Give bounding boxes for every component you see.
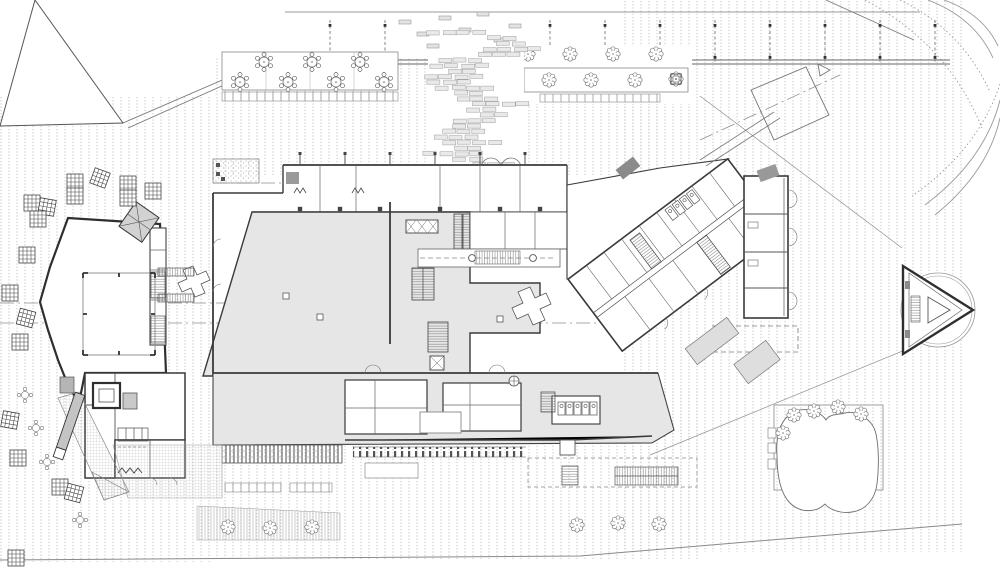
- stamped-symbol: [120, 190, 136, 206]
- stamped-symbol: [263, 521, 277, 535]
- stamped-symbol: [317, 314, 323, 320]
- skylight: [93, 383, 120, 408]
- cascade-paver: [485, 97, 498, 101]
- cascade-paver: [443, 129, 456, 133]
- cascade-paver: [453, 119, 466, 123]
- cascade-paver: [482, 119, 495, 123]
- cascade-paver: [457, 140, 470, 144]
- triangle-kiosk: [901, 266, 975, 354]
- cascade-paver: [467, 86, 480, 90]
- stamped-symbol: [438, 207, 442, 211]
- cascade-paver: [449, 136, 462, 140]
- cascade-paver: [453, 124, 466, 128]
- stamped-symbol: [606, 47, 620, 61]
- stamped-symbol: [611, 516, 625, 530]
- cascade-paver: [476, 63, 489, 67]
- cascade-paver: [502, 102, 515, 106]
- stamped-symbol: [439, 16, 451, 20]
- stamped-symbol: [24, 195, 40, 211]
- cascade-paver: [440, 152, 453, 156]
- cascade-paver: [426, 31, 439, 35]
- stamped-symbol: [283, 293, 289, 299]
- cascade-paver: [449, 69, 462, 73]
- stamped-symbol: [807, 404, 821, 418]
- stamped-symbol: [574, 402, 581, 415]
- cascade-paver: [494, 113, 507, 117]
- cascade-paver: [468, 146, 481, 150]
- stamped-symbol: [10, 450, 26, 466]
- outdoor-seating-band: [222, 52, 398, 101]
- cascade-paver: [480, 113, 493, 117]
- stamped-symbol: [497, 316, 503, 322]
- cascade-paver: [468, 119, 481, 123]
- stamped-symbol: [563, 47, 577, 61]
- revolving-door: [509, 376, 519, 386]
- cascade-paver: [473, 102, 486, 106]
- cascade-paver: [434, 135, 447, 139]
- stamped-symbol: [399, 20, 411, 24]
- bench-row: [540, 94, 660, 102]
- stamped-symbol: [1, 411, 20, 430]
- cascade-paver: [489, 140, 502, 144]
- cascade-paver: [483, 107, 496, 111]
- stamped-symbol: [30, 211, 46, 227]
- stamped-symbol: [854, 407, 868, 421]
- cascade-paver: [427, 80, 440, 84]
- stamped-symbol: [509, 24, 521, 28]
- cascade-paver: [439, 75, 452, 79]
- cascade-paver: [469, 97, 482, 101]
- stamped-symbol: [652, 517, 666, 531]
- cascade-paver: [457, 129, 470, 133]
- cascade-paver: [452, 85, 465, 89]
- light-court: [420, 412, 461, 433]
- cascade-paver: [453, 58, 466, 62]
- cascade-paver: [467, 124, 480, 128]
- stamped-symbol: [558, 402, 565, 415]
- stamped-symbol: [145, 183, 161, 199]
- cascade-paver: [483, 48, 496, 52]
- cascade-paver: [457, 97, 470, 101]
- stamped-symbol: [8, 550, 24, 566]
- cascade-paver: [503, 36, 516, 40]
- kiosk: [560, 440, 575, 455]
- bench-row: [290, 483, 332, 492]
- kiosk-stair: [911, 296, 920, 322]
- cascade-paver: [455, 91, 468, 95]
- cascade-paver: [443, 31, 456, 35]
- cascade-paver: [498, 47, 511, 51]
- cascade-paver: [455, 152, 468, 156]
- trellis: [222, 445, 342, 463]
- reflecting-pool: [365, 463, 418, 478]
- cascade-paver: [486, 102, 499, 106]
- stamped-symbol: [776, 426, 790, 440]
- cascade-paver: [456, 30, 469, 34]
- stamped-symbol: [67, 188, 83, 204]
- cascade-paver: [425, 75, 438, 79]
- cascade-paver: [455, 75, 468, 79]
- pond: [777, 410, 879, 513]
- colonnade: [353, 447, 526, 457]
- floor-plan-drawing: [0, 0, 1000, 572]
- elevator-bank: [406, 220, 438, 233]
- stair: [562, 466, 578, 485]
- cascade-paver: [481, 86, 494, 90]
- cascade-paver: [462, 69, 475, 73]
- ramp-pad: [60, 377, 74, 393]
- stamped-symbol: [649, 47, 663, 61]
- stamped-symbol: [469, 255, 476, 262]
- cascade-paver: [462, 64, 475, 68]
- stamped-symbol: [2, 285, 18, 301]
- stamped-symbol: [338, 207, 342, 211]
- cascade-paver: [493, 52, 506, 56]
- cascade-paver: [467, 108, 480, 112]
- cascade-paver: [470, 157, 483, 161]
- cascade-paver: [465, 135, 478, 139]
- cascade-paver: [507, 52, 520, 56]
- stamped-symbol: [542, 73, 556, 87]
- door-mat: [286, 172, 299, 184]
- south-rooms-west: [345, 380, 427, 434]
- planting-bed: [213, 159, 259, 183]
- stamped-symbol: [582, 402, 589, 415]
- floor-plan-page: [0, 0, 1000, 572]
- bench-row: [225, 483, 281, 492]
- stamped-symbol: [378, 207, 382, 211]
- stamped-symbol: [570, 518, 584, 532]
- cascade-paver: [473, 141, 486, 145]
- cascade-paver: [430, 64, 443, 68]
- cascade-paver: [515, 48, 528, 52]
- wc-row: [558, 402, 597, 415]
- stamped-symbol: [530, 255, 537, 262]
- cascade-paver: [455, 146, 468, 150]
- stamped-symbol: [831, 400, 845, 414]
- cascade-paver: [453, 157, 466, 161]
- stamped-symbol: [477, 12, 489, 16]
- elevator: [430, 356, 444, 370]
- stamped-symbol: [787, 408, 801, 422]
- link-bridge: [158, 268, 194, 276]
- cascade-paver: [457, 80, 470, 84]
- stamped-symbol: [628, 73, 642, 87]
- stamped-symbol: [427, 44, 439, 48]
- cascade-paver: [488, 36, 501, 40]
- stamped-symbol: [566, 402, 573, 415]
- cascade-paver: [439, 59, 452, 63]
- stair: [151, 316, 165, 343]
- cascade-paver: [516, 102, 529, 106]
- cascade-paver: [469, 59, 482, 63]
- bridge-treads: [475, 251, 520, 264]
- cascade-paver: [473, 30, 486, 34]
- cascade-paver: [496, 41, 509, 45]
- cascade-paver: [444, 80, 457, 84]
- bench-row: [222, 92, 398, 101]
- stair: [428, 322, 448, 352]
- cascade-paver: [472, 129, 485, 133]
- stair: [541, 392, 555, 412]
- cascade-paver: [445, 64, 458, 68]
- cascade-paver: [512, 42, 525, 46]
- stamped-symbol: [538, 207, 542, 211]
- stamped-symbol: [498, 207, 502, 211]
- stamped-symbol: [590, 402, 597, 415]
- cascade-paver: [443, 141, 456, 145]
- link-bridge: [158, 294, 194, 302]
- stamped-symbol: [305, 520, 319, 534]
- stamped-symbol: [12, 334, 28, 350]
- door-swing: [213, 239, 221, 292]
- stamped-symbol: [19, 247, 35, 263]
- stamped-symbol: [221, 520, 235, 534]
- cascade-paver: [527, 47, 540, 51]
- east-rooms: [470, 212, 567, 249]
- cascade-paver: [470, 74, 483, 78]
- stamped-symbol: [298, 207, 302, 211]
- cascade-paver: [435, 86, 448, 90]
- stamped-symbol: [584, 73, 598, 87]
- cascade-paver: [469, 91, 482, 95]
- paved-apron: [113, 445, 222, 498]
- stamped-symbol: [669, 72, 683, 86]
- cascade-paver: [478, 52, 491, 56]
